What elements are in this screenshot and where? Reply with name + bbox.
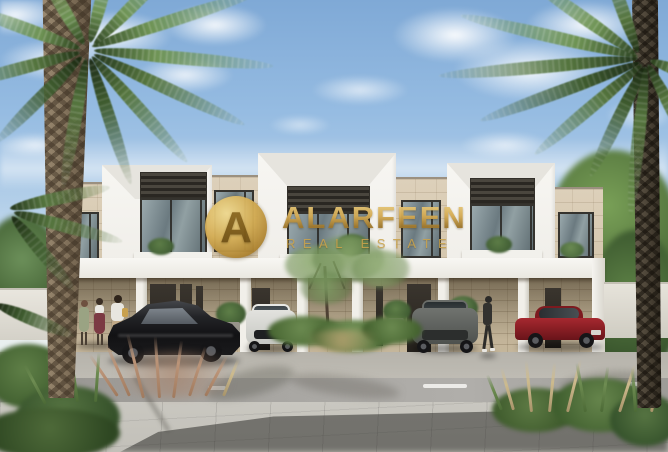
tree-foliage [300, 272, 352, 304]
pedestrian-walking [480, 296, 496, 358]
logo-monogram: A [205, 202, 267, 254]
balcony-plant [148, 238, 174, 255]
property-photo: A ALARFEEN REAL ESTATE [0, 0, 668, 452]
watermark-tagline: REAL ESTATE [286, 236, 454, 251]
person [78, 300, 90, 348]
red-car [515, 306, 605, 352]
watermark-brand: ALARFEEN [282, 200, 467, 236]
license-plate [591, 330, 601, 335]
balcony-plant [560, 242, 584, 258]
car-highlight [118, 334, 233, 337]
lane-marking [423, 384, 467, 388]
person [93, 298, 106, 348]
recess-soffit [258, 153, 396, 189]
gray-suv [412, 300, 478, 352]
watermark: A ALARFEEN REAL ESTATE [178, 188, 498, 266]
alarfeen-logo-icon: A [205, 196, 267, 258]
suv-grille [422, 330, 468, 340]
dry-grass [296, 330, 388, 352]
